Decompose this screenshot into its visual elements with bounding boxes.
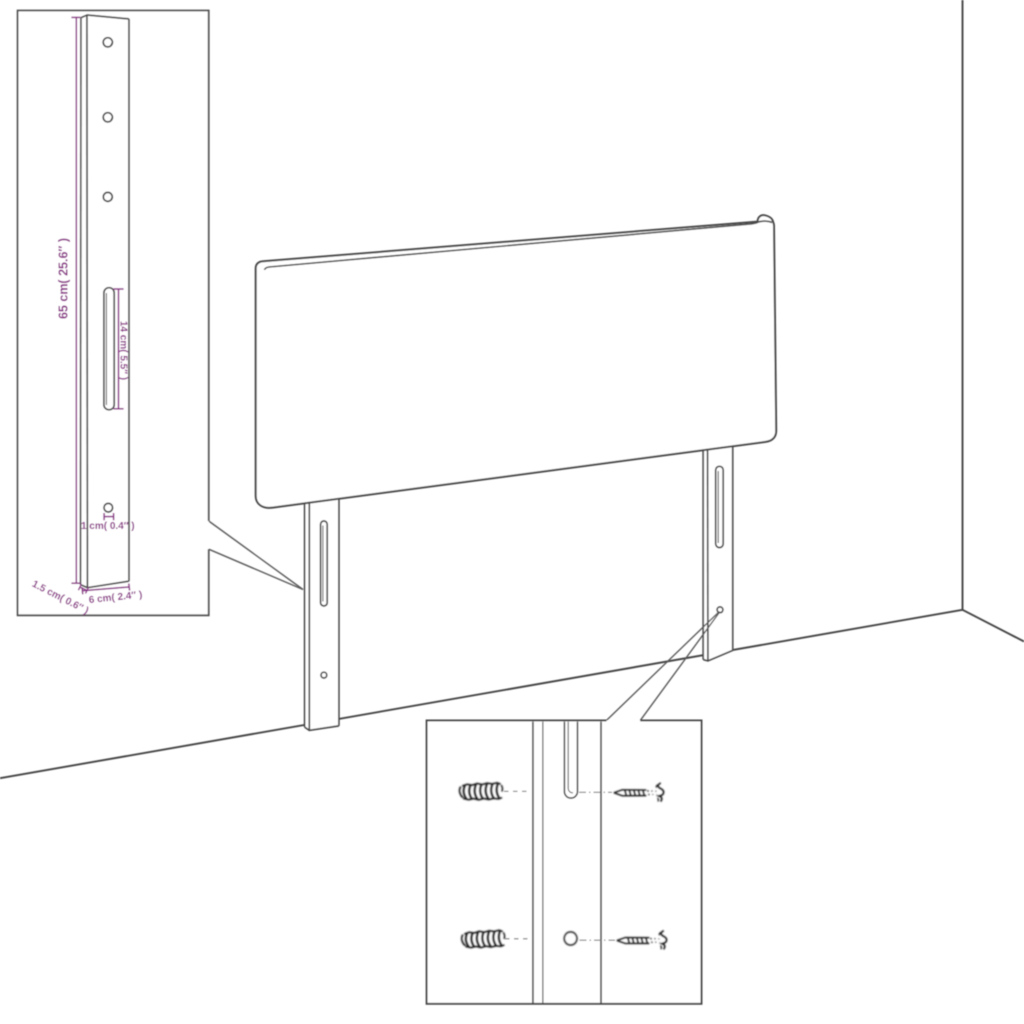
svg-text:14 cm( 5.5″ ): 14 cm( 5.5″ ) <box>117 321 128 380</box>
svg-text:1 cm( 0.4″ ): 1 cm( 0.4″ ) <box>81 521 135 532</box>
svg-text:65 cm( 25.6″ ): 65 cm( 25.6″ ) <box>57 238 71 319</box>
